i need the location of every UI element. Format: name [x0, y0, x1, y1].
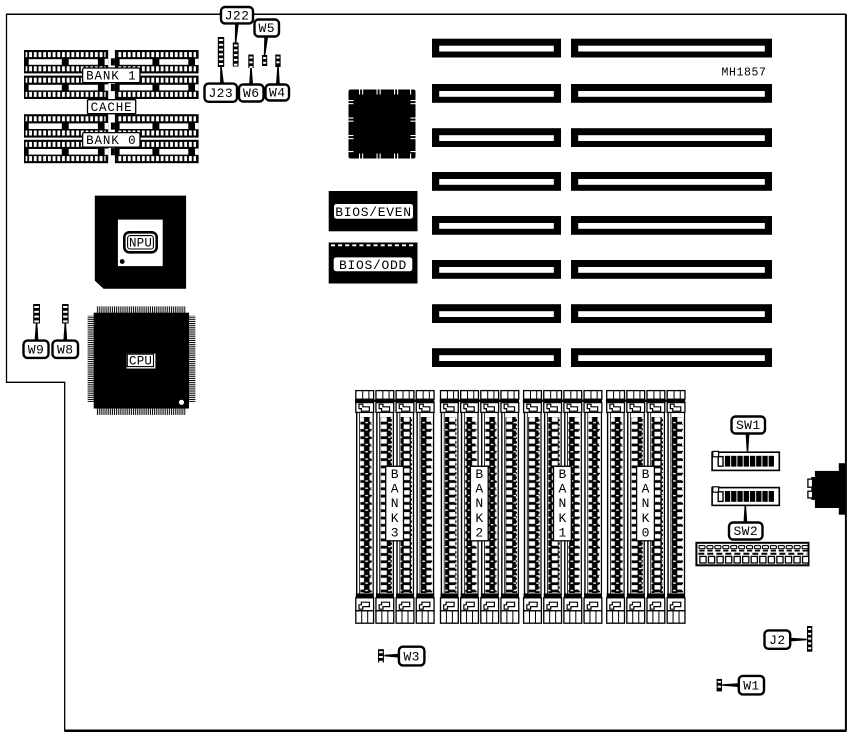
svg-text:N: N	[558, 496, 566, 511]
svg-text:A: A	[391, 482, 399, 497]
svg-text:B: B	[475, 467, 483, 482]
svg-text:BANK 1: BANK 1	[86, 70, 136, 84]
svg-text:W6: W6	[243, 86, 259, 101]
svg-text:W8: W8	[57, 342, 73, 357]
svg-text:N: N	[642, 496, 650, 511]
svg-text:BIOS/EVEN: BIOS/EVEN	[335, 205, 412, 220]
svg-text:K: K	[391, 511, 399, 526]
svg-text:W9: W9	[28, 342, 44, 357]
svg-text:CPU: CPU	[129, 354, 152, 368]
svg-text:W4: W4	[269, 86, 285, 101]
svg-text:W5: W5	[259, 21, 275, 36]
svg-text:N: N	[475, 496, 483, 511]
svg-text:K: K	[558, 511, 566, 526]
svg-text:K: K	[475, 511, 483, 526]
svg-text:N: N	[391, 496, 399, 511]
svg-text:J22: J22	[225, 8, 250, 23]
svg-text:BANK 0: BANK 0	[86, 134, 136, 148]
svg-text:K: K	[642, 511, 650, 526]
svg-text:2: 2	[475, 525, 483, 540]
svg-text:J23: J23	[208, 86, 233, 101]
svg-text:0: 0	[642, 525, 650, 540]
svg-text:B: B	[642, 467, 650, 482]
svg-text:NPU: NPU	[129, 236, 152, 250]
svg-text:SW2: SW2	[733, 524, 758, 539]
svg-text:SW1: SW1	[736, 418, 761, 433]
svg-text:W3: W3	[403, 649, 419, 664]
svg-text:3: 3	[391, 525, 399, 540]
svg-text:B: B	[391, 467, 399, 482]
svg-text:W1: W1	[743, 678, 759, 693]
svg-text:CACHE: CACHE	[91, 101, 133, 115]
svg-text:A: A	[475, 482, 483, 497]
svg-text:1: 1	[558, 525, 566, 540]
svg-text:A: A	[558, 482, 566, 497]
svg-text:MH1857: MH1857	[721, 66, 766, 79]
svg-text:A: A	[642, 482, 650, 497]
svg-text:BIOS/ODD: BIOS/ODD	[339, 258, 407, 273]
svg-text:J2: J2	[769, 633, 785, 648]
svg-text:B: B	[558, 467, 566, 482]
